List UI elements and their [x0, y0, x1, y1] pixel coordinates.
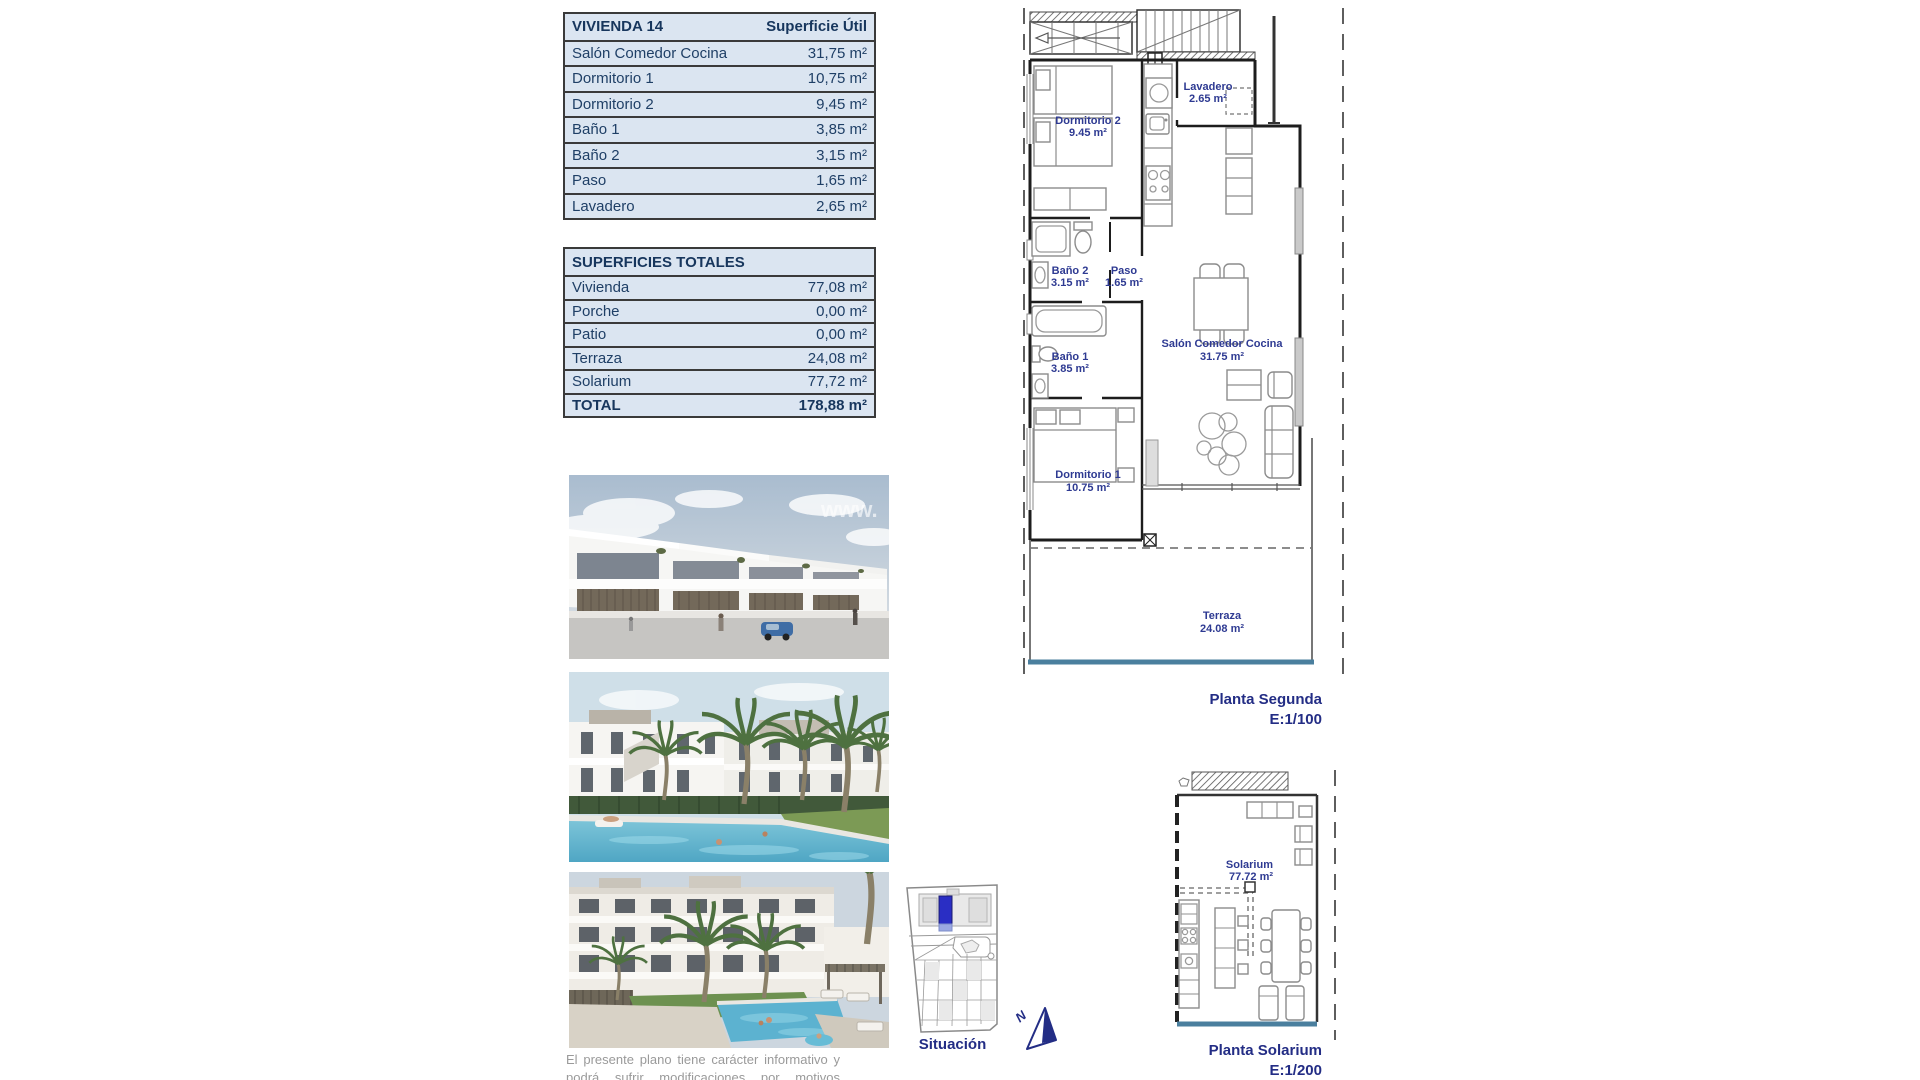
situacion-label: Situación — [895, 1036, 1010, 1053]
table-row: Solarium77,72 m² — [565, 369, 874, 393]
solarium-lounge — [1247, 802, 1312, 865]
situacion-map — [895, 874, 1010, 1034]
north-arrow-icon: N — [1012, 1002, 1060, 1054]
room-label-solarium: Solarium 77.72 m² — [1226, 859, 1276, 883]
table-row: Baño 23,15 m² — [565, 142, 874, 168]
table-row: Dormitorio 29,45 m² — [565, 91, 874, 117]
svg-text:Paso1.65 m²: Paso1.65 m² — [1105, 265, 1143, 289]
table-header-row: VIVIENDA 14 Superficie Útil — [565, 14, 874, 40]
render-photo-apartments-pool — [569, 872, 889, 1048]
brochure-page: VIVIENDA 14 Superficie Útil Salón Comedo… — [0, 0, 1920, 1080]
salon-glazing — [1142, 483, 1300, 491]
table-row: Dormitorio 110,75 m² — [565, 65, 874, 91]
table-row: Salón Comedor Cocina31,75 m² — [565, 40, 874, 66]
svg-text:Baño 13.85 m²: Baño 13.85 m² — [1051, 351, 1089, 375]
table-row: Patio0,00 m² — [565, 322, 874, 346]
solarium-dining — [1261, 910, 1311, 982]
column-header: Superficie Útil — [766, 18, 867, 35]
disclaimer-text: El presente plano tiene carácter informa… — [566, 1051, 840, 1080]
table-title: VIVIENDA 14 — [572, 18, 663, 35]
table-row: Baño 13,85 m² — [565, 116, 874, 142]
terrace-door — [1146, 440, 1158, 486]
svg-text:Terraza24.08 m²: Terraza24.08 m² — [1200, 610, 1244, 635]
render-photo-townhouses: www. — [569, 475, 889, 659]
svg-text:N: N — [1012, 1007, 1029, 1025]
kitchen — [1144, 64, 1172, 226]
svg-text:Lavadero2.65 m²: Lavadero2.65 m² — [1184, 81, 1233, 105]
table-header-row: SUPERFICIES TOTALES — [565, 249, 874, 275]
floor-plan-planta-segunda: Dormitorio 29.45 m² Lavadero2.65 m² Baño… — [1022, 8, 1348, 674]
solarium-sun-loungers — [1259, 986, 1304, 1020]
curb — [569, 611, 889, 618]
deck — [569, 1004, 731, 1048]
table-title: SUPERFICIES TOTALES — [572, 254, 745, 271]
svg-text:Salón Comedor Cocina31.75 m²: Salón Comedor Cocina31.75 m² — [1161, 338, 1283, 363]
table-row: Lavadero2,65 m² — [565, 193, 874, 219]
table-total-row: TOTAL178,88 m² — [565, 393, 874, 417]
plan-caption-planta-segunda: Planta Segunda E:1/100 — [1082, 690, 1322, 730]
render-photo-pool-courtyard — [569, 672, 889, 862]
svg-text:Baño 23.15 m²: Baño 23.15 m² — [1051, 265, 1089, 289]
table-row: Vivienda77,08 m² — [565, 275, 874, 299]
pergola-hatch — [1179, 772, 1288, 790]
dining-set — [1194, 264, 1248, 344]
laundry-fixtures — [1226, 88, 1252, 214]
plant — [1197, 413, 1246, 475]
solarium-bar — [1215, 908, 1248, 988]
solarium-kitchen — [1179, 900, 1199, 1008]
staircase — [1030, 10, 1255, 67]
plan-caption-planta-solarium: Planta Solarium E:1/200 — [1082, 1041, 1322, 1080]
floor-plan-planta-solarium: Solarium 77.72 m² — [1175, 770, 1345, 1040]
table-row: Paso1,65 m² — [565, 167, 874, 193]
street — [569, 613, 889, 659]
superficie-util-table: VIVIENDA 14 Superficie Útil Salón Comedo… — [563, 12, 876, 220]
table-row: Porche0,00 m² — [565, 299, 874, 323]
superficies-totales-table: SUPERFICIES TOTALES Vivienda77,08 m² Por… — [563, 247, 876, 418]
watermark: www. — [820, 497, 878, 522]
highlighted-unit — [939, 896, 952, 924]
table-row: Terraza24,08 m² — [565, 346, 874, 370]
post — [1245, 882, 1255, 892]
building-blocks-top — [919, 889, 991, 931]
